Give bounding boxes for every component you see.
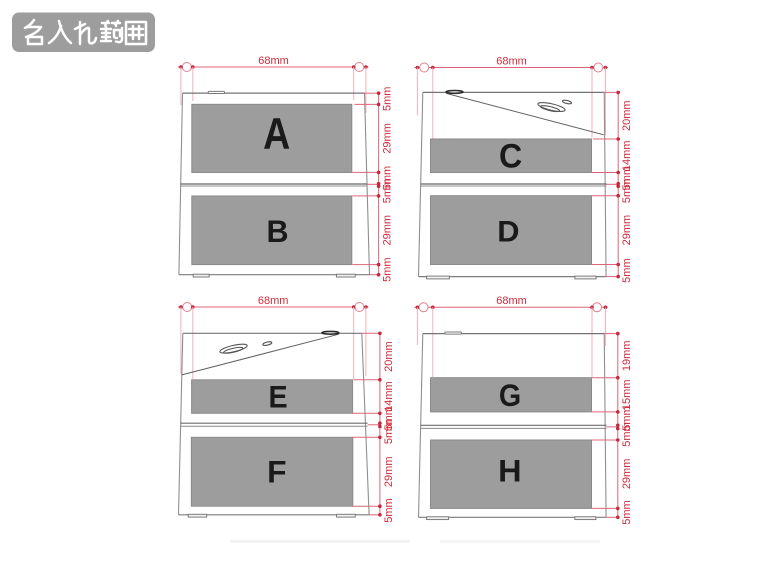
svg-text:15mm: 15mm: [621, 380, 633, 411]
svg-text:20mm: 20mm: [383, 341, 395, 372]
svg-text:H: H: [498, 453, 521, 488]
svg-text:29mm: 29mm: [621, 459, 633, 490]
svg-text:5mm: 5mm: [621, 422, 633, 446]
svg-text:G: G: [499, 379, 521, 413]
svg-text:68mm: 68mm: [258, 295, 289, 307]
svg-text:A: A: [263, 109, 290, 159]
svg-text:5mm: 5mm: [621, 258, 633, 282]
svg-text:F: F: [267, 454, 286, 490]
svg-text:5mm: 5mm: [621, 500, 633, 524]
svg-text:20mm: 20mm: [621, 100, 633, 131]
svg-text:D: D: [497, 216, 519, 249]
svg-text:68mm: 68mm: [258, 55, 289, 67]
svg-text:B: B: [267, 214, 289, 249]
svg-text:29mm: 29mm: [382, 215, 394, 246]
svg-text:5mm: 5mm: [382, 257, 394, 281]
svg-text:19mm: 19mm: [621, 341, 633, 372]
svg-text:68mm: 68mm: [496, 295, 527, 307]
svg-text:29mm: 29mm: [383, 457, 395, 488]
svg-text:5mm: 5mm: [382, 87, 394, 111]
svg-text:E: E: [269, 380, 288, 414]
svg-text:68mm: 68mm: [496, 55, 527, 67]
svg-text:29mm: 29mm: [382, 123, 394, 154]
svg-text:5mm: 5mm: [383, 420, 395, 444]
svg-text:5mm: 5mm: [621, 179, 633, 203]
svg-text:5mm: 5mm: [382, 179, 394, 203]
svg-text:C: C: [499, 138, 522, 176]
svg-text:29mm: 29mm: [621, 215, 633, 246]
svg-text:5mm: 5mm: [383, 498, 395, 522]
